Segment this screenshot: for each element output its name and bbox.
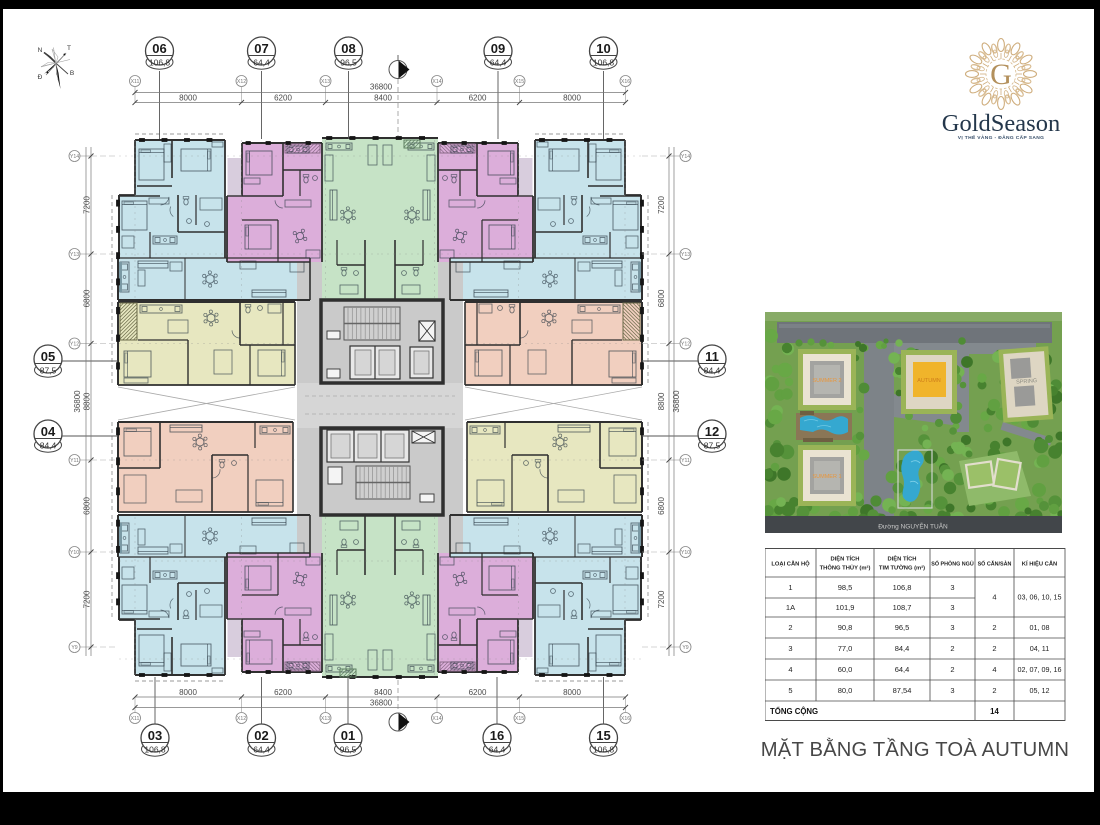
svg-text:101,9: 101,9 [836,603,855,612]
svg-text:3: 3 [950,583,954,592]
svg-text:36800: 36800 [370,83,393,92]
svg-text:Y10: Y10 [70,550,79,556]
svg-text:60,0: 60,0 [838,665,853,674]
svg-text:Y11: Y11 [681,458,690,464]
svg-text:6800: 6800 [657,497,666,515]
svg-text:87,5: 87,5 [704,441,721,451]
svg-text:09: 09 [491,41,505,56]
svg-text:77,0: 77,0 [838,644,853,653]
svg-text:98,5: 98,5 [838,583,853,592]
svg-text:Y10: Y10 [681,550,690,556]
svg-text:LOẠI CĂN HỘ: LOẠI CĂN HỘ [771,560,810,568]
svg-text:64,4: 64,4 [253,745,270,755]
svg-text:X14: X14 [432,716,441,722]
svg-text:08: 08 [341,41,355,56]
svg-text:2: 2 [950,644,954,653]
svg-text:36800: 36800 [370,699,393,708]
svg-text:3: 3 [950,686,954,695]
svg-text:X16: X16 [621,79,630,85]
svg-text:2: 2 [992,623,996,632]
svg-text:SUMMER 2: SUMMER 2 [812,378,841,384]
svg-text:16: 16 [490,728,504,743]
svg-text:Y11: Y11 [70,458,79,464]
svg-text:03: 03 [148,728,162,743]
svg-text:8000: 8000 [563,94,581,103]
svg-text:SUMMER 1: SUMMER 1 [812,474,841,480]
svg-text:KÍ HIỆU CĂN: KÍ HIỆU CĂN [1022,560,1057,568]
svg-text:DIỆN TÍCH: DIỆN TÍCH [888,555,917,563]
svg-text:2: 2 [950,665,954,674]
svg-text:6800: 6800 [657,289,666,307]
svg-text:Y9: Y9 [71,645,77,651]
svg-text:3: 3 [950,603,954,612]
svg-text:G: G [990,58,1012,91]
svg-text:8000: 8000 [563,688,581,697]
svg-text:8400: 8400 [374,688,392,697]
svg-text:Y13: Y13 [70,252,79,258]
svg-text:6200: 6200 [469,94,487,103]
svg-text:02: 02 [254,728,268,743]
svg-text:DIỆN TÍCH: DIỆN TÍCH [831,555,860,563]
svg-text:8000: 8000 [179,688,197,697]
svg-text:84,4: 84,4 [704,366,721,376]
svg-text:108,7: 108,7 [893,603,912,612]
svg-text:106,8: 106,8 [144,745,166,755]
svg-text:96,5: 96,5 [895,623,910,632]
svg-text:B: B [70,70,74,77]
svg-text:84,4: 84,4 [40,441,57,451]
svg-text:64,4: 64,4 [895,665,910,674]
svg-text:THÔNG THỦY (m²): THÔNG THỦY (m²) [820,564,871,572]
svg-text:6800: 6800 [83,289,92,307]
svg-text:14: 14 [990,707,999,716]
svg-text:01: 01 [341,728,355,743]
svg-text:6800: 6800 [83,497,92,515]
svg-text:X11: X11 [131,79,140,85]
svg-text:AUTUMN: AUTUMN [917,378,941,384]
svg-text:Y12: Y12 [681,342,690,348]
svg-text:12: 12 [705,424,719,439]
svg-text:96,5: 96,5 [340,58,357,68]
svg-text:15: 15 [596,728,610,743]
svg-text:X14: X14 [432,79,441,85]
svg-text:Y14: Y14 [681,154,690,160]
svg-text:SỐ PHÒNG NGỦ: SỐ PHÒNG NGỦ [931,560,974,568]
svg-text:TỔNG CỘNG: TỔNG CỘNG [770,707,818,716]
svg-text:X16: X16 [621,716,630,722]
svg-text:8800: 8800 [83,392,92,410]
svg-text:7200: 7200 [83,196,92,214]
svg-text:4: 4 [992,593,996,602]
svg-text:8800: 8800 [657,392,666,410]
svg-text:X12: X12 [237,716,246,722]
svg-text:10: 10 [596,41,610,56]
svg-text:X13: X13 [321,716,330,722]
svg-text:8400: 8400 [374,94,392,103]
svg-text:02, 07, 09, 16: 02, 07, 09, 16 [1018,665,1062,674]
svg-text:87,5: 87,5 [40,366,57,376]
svg-text:Y9: Y9 [682,645,688,651]
svg-text:03, 06, 10, 15: 03, 06, 10, 15 [1018,593,1062,602]
svg-text:4: 4 [992,665,996,674]
svg-text:X13: X13 [321,79,330,85]
svg-text:6200: 6200 [274,688,292,697]
svg-text:Y12: Y12 [70,342,79,348]
svg-text:06: 06 [152,41,166,56]
svg-text:05, 12: 05, 12 [1030,686,1050,695]
svg-text:106,8: 106,8 [593,745,615,755]
svg-text:2: 2 [992,644,996,653]
svg-text:N: N [38,47,43,54]
svg-text:106,8: 106,8 [149,58,171,68]
svg-text:1A: 1A [786,603,795,612]
svg-text:106,8: 106,8 [893,583,912,592]
svg-text:X15: X15 [515,79,524,85]
svg-text:04, 11: 04, 11 [1030,644,1049,653]
svg-text:4: 4 [788,665,792,674]
svg-text:7200: 7200 [657,196,666,214]
svg-text:05: 05 [41,349,55,364]
svg-text:36800: 36800 [672,390,681,413]
svg-text:X12: X12 [237,79,246,85]
svg-text:X15: X15 [515,716,524,722]
svg-text:1: 1 [788,583,792,592]
svg-text:01, 08: 01, 08 [1030,623,1050,632]
svg-text:X11: X11 [131,716,140,722]
svg-text:64,4: 64,4 [489,745,506,755]
svg-text:96,5: 96,5 [340,745,357,755]
svg-text:Y14: Y14 [70,154,79,160]
svg-text:5: 5 [788,686,792,695]
svg-text:64,4: 64,4 [253,58,270,68]
svg-text:64,4: 64,4 [490,58,507,68]
svg-text:04: 04 [41,424,56,439]
svg-text:106,8: 106,8 [593,58,615,68]
svg-text:Đường NGUYỄN TUÂN: Đường NGUYỄN TUÂN [878,522,948,531]
svg-text:36800: 36800 [73,390,82,413]
svg-text:6200: 6200 [469,688,487,697]
svg-text:07: 07 [254,41,268,56]
svg-text:Đ: Đ [38,74,43,81]
svg-text:2: 2 [788,623,792,632]
svg-text:90,8: 90,8 [838,623,853,632]
svg-text:6200: 6200 [274,94,292,103]
svg-text:TIM TƯỜNG (m²): TIM TƯỜNG (m²) [879,564,925,572]
svg-text:87,54: 87,54 [893,686,912,695]
svg-text:SỐ CĂN/SÀN: SỐ CĂN/SÀN [978,561,1012,568]
svg-text:2: 2 [992,686,996,695]
svg-text:7200: 7200 [83,590,92,608]
svg-text:Y13: Y13 [681,252,690,258]
svg-text:T: T [67,45,71,52]
svg-text:80,0: 80,0 [838,686,853,695]
svg-text:3: 3 [788,644,792,653]
svg-text:7200: 7200 [657,590,666,608]
svg-text:84,4: 84,4 [895,644,910,653]
svg-text:11: 11 [705,349,719,364]
svg-text:8000: 8000 [179,94,197,103]
svg-text:3: 3 [950,623,954,632]
